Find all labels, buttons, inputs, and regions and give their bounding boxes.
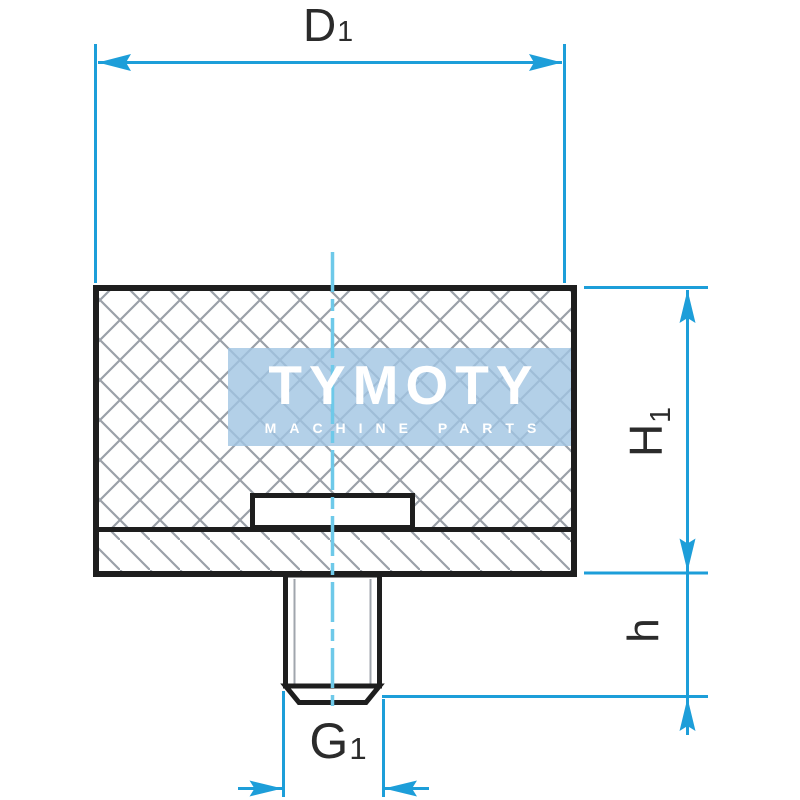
label-d1: D1 <box>280 2 376 48</box>
label-d1-symbol: D <box>303 2 336 48</box>
label-h1: H1 <box>616 372 676 492</box>
label-h1-symbol: H <box>623 424 669 457</box>
label-h1-subscript: 1 <box>647 407 676 423</box>
dimension-d1 <box>96 44 565 283</box>
label-h-symbol: h <box>622 618 666 642</box>
drawing-canvas <box>0 0 800 800</box>
label-g1-subscript: 1 <box>349 733 366 764</box>
label-g1: G1 <box>284 716 392 766</box>
base-plate-hatch <box>96 532 574 574</box>
label-h: h <box>616 570 672 690</box>
watermark-overlay <box>228 348 573 446</box>
label-d1-subscript: 1 <box>337 18 353 47</box>
technical-drawing-rubber-buffer: TYMOTY MACHINE PARTS D1 H1 h G1 <box>0 0 800 800</box>
label-g1-symbol: G <box>309 716 348 766</box>
